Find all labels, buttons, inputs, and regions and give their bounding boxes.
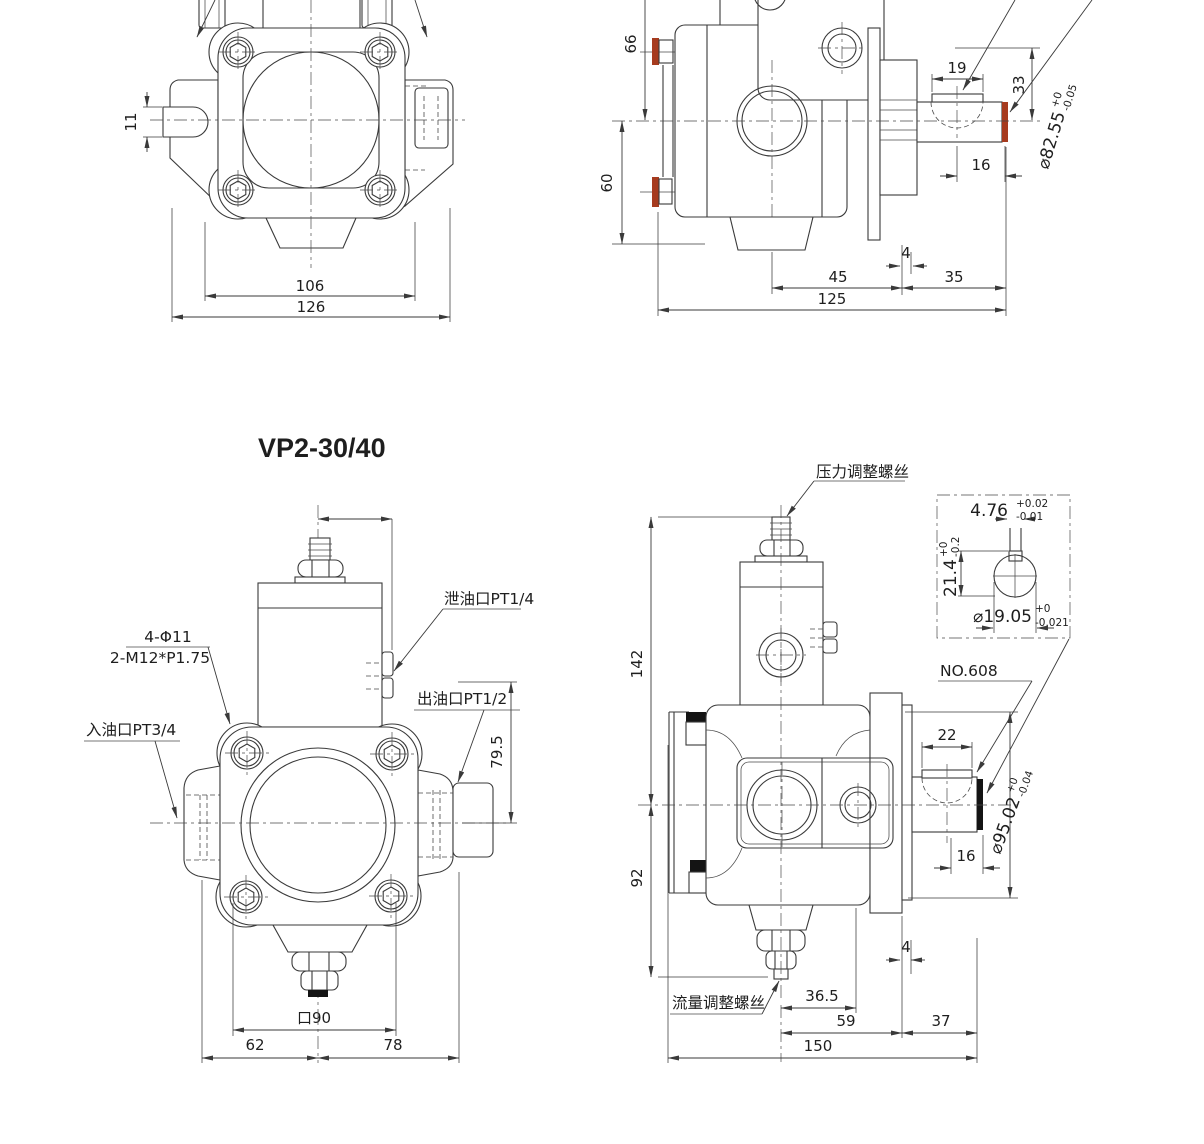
dim-16-bottom: 16 [956,847,975,865]
dim-36-5: 36.5 [805,987,838,1005]
shaft-dia-value: ⌀82.55 [1034,109,1070,171]
leader-shaft-dia [1010,0,1092,112]
shaft-end-mark-bottom [977,779,983,830]
pump-dimension-drawing: 11 106 126 [0,0,1204,1144]
dim-45: 45 [828,268,847,286]
view-front-top: 11 106 126 [122,0,465,322]
dim-59: 59 [836,1012,855,1030]
label-outlet-port: 出油口PT1/2 [417,690,507,708]
label-inlet-port: 入油口PT3/4 [86,721,176,739]
dim-150: 150 [804,1037,833,1055]
dim-sq90: 口90 [297,1009,331,1027]
detail-key-height-tol-top: +0 [938,542,950,557]
seal-mark-bottom-side [690,860,707,872]
pilot-dia-tol-bot: -0.04 [1016,769,1037,799]
leader-cropped-right [415,0,427,37]
dim-125: 125 [818,290,847,308]
dim-142: 142 [628,650,646,679]
dim-78: 78 [383,1036,402,1054]
view-side-bottom: 142 92 22 16 ⌀95.02 +0 -0.04 NO.608 [628,463,1070,1063]
shaft-end-mark [1002,102,1008,142]
detail-key-width: 4.76 [970,501,1008,521]
catalog-page: 11 106 126 [0,0,1204,1144]
dim-66: 66 [622,34,640,53]
label-pressure-screw: 压力调整螺丝 [816,463,909,481]
page-title: VP2-30/40 [258,433,386,463]
flow-screw-mark [308,990,328,997]
detail-key-height: 21.4 [941,559,961,597]
dim-62: 62 [245,1036,264,1054]
label-bearing: NO.608 [940,662,998,680]
detail-shaft-dia: ⌀19.05 [973,607,1032,627]
key-detail-view: 4.76 +0.02 -0.01 21.4 +0 -0.2 ⌀19.05 +0 … [937,495,1070,638]
detail-key-height-tol-bot: -0.2 [950,537,962,558]
dim-22: 22 [937,726,956,744]
dim-106: 106 [296,277,325,295]
outlet-port-boss [453,783,493,857]
dim-126: 126 [297,298,326,316]
dim-37: 37 [931,1012,950,1030]
dim-4-bottom: 4 [901,938,911,956]
label-flow-screw: 流量调整螺丝 [672,994,765,1012]
detail-key-width-tol-top: +0.02 [1016,498,1048,510]
dim-19: 19 [947,59,966,77]
detail-key-width-tol-bot: -0.01 [1016,511,1043,523]
drain-port-stub [382,652,393,676]
dim-60: 60 [598,173,616,192]
pressure-screw-stud [310,538,330,560]
pilot-dia-value: ⌀95.02 [986,795,1025,857]
label-bolt-thread: 2-M12*P1.75 [110,649,210,667]
view-front-bottom: 79.5 口90 62 78 泄油口PT1/4 4-Φ11 2-M12*P1.7… [84,505,534,1063]
detail-shaft-dia-tol-top: +0 [1035,603,1050,615]
leader-key-cropped [963,0,1015,90]
dim-92: 92 [628,868,646,887]
shaft-key [932,94,983,102]
seal-mark-bottom [652,177,659,207]
seal-mark-top-side [686,712,706,722]
shaft-dia-tol-bot: -0.05 [1060,83,1079,112]
detail-shaft-dia-tol-bot: -0.021 [1035,617,1069,629]
detail-leader [987,639,1069,793]
dim-79-5: 79.5 [488,735,506,768]
view-side-top: 66 60 19 33 16 4 45 35 125 ⌀82.5 [598,0,1092,316]
seal-mark-top [652,38,659,65]
dim-11: 11 [122,112,140,131]
label-drain-port: 泄油口PT1/4 [444,590,534,608]
dim-35: 35 [944,268,963,286]
label-bolt-holes: 4-Φ11 [144,628,191,646]
dim-4-top: 4 [901,244,911,262]
dim-16-top: 16 [971,156,990,174]
shaft-diameter-callout: ⌀82.55 +0 -0.05 [1031,79,1080,171]
